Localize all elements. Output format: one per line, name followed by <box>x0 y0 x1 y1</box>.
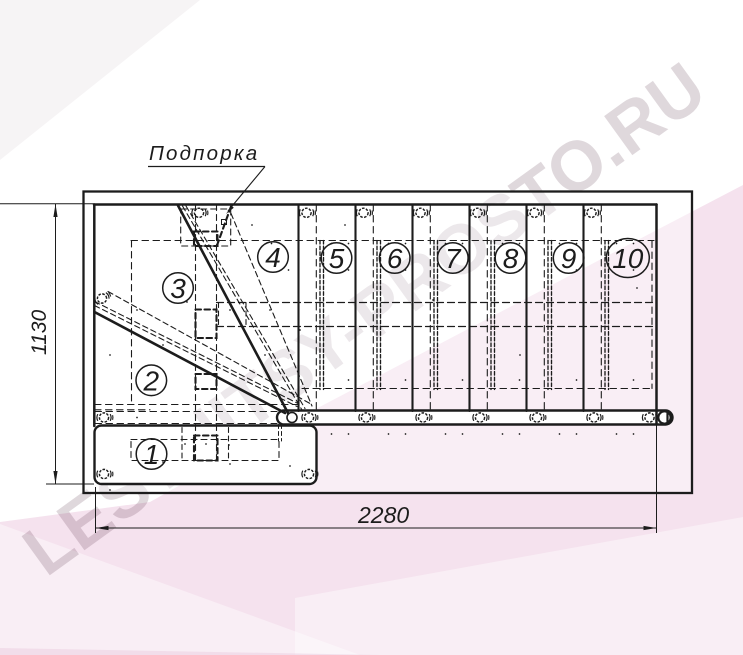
svg-text:2: 2 <box>143 365 160 396</box>
svg-text:5: 5 <box>329 243 345 274</box>
svg-text:3: 3 <box>170 273 186 304</box>
svg-text:7: 7 <box>445 243 462 274</box>
svg-text:2280: 2280 <box>357 502 409 528</box>
svg-text:Подпорка: Подпорка <box>149 142 259 165</box>
svg-text:10: 10 <box>612 243 644 274</box>
svg-text:9: 9 <box>561 243 577 274</box>
svg-text:1: 1 <box>144 439 160 470</box>
svg-text:4: 4 <box>265 242 281 273</box>
svg-text:6: 6 <box>387 243 403 274</box>
svg-text:8: 8 <box>503 243 519 274</box>
svg-text:1130: 1130 <box>28 310 51 355</box>
